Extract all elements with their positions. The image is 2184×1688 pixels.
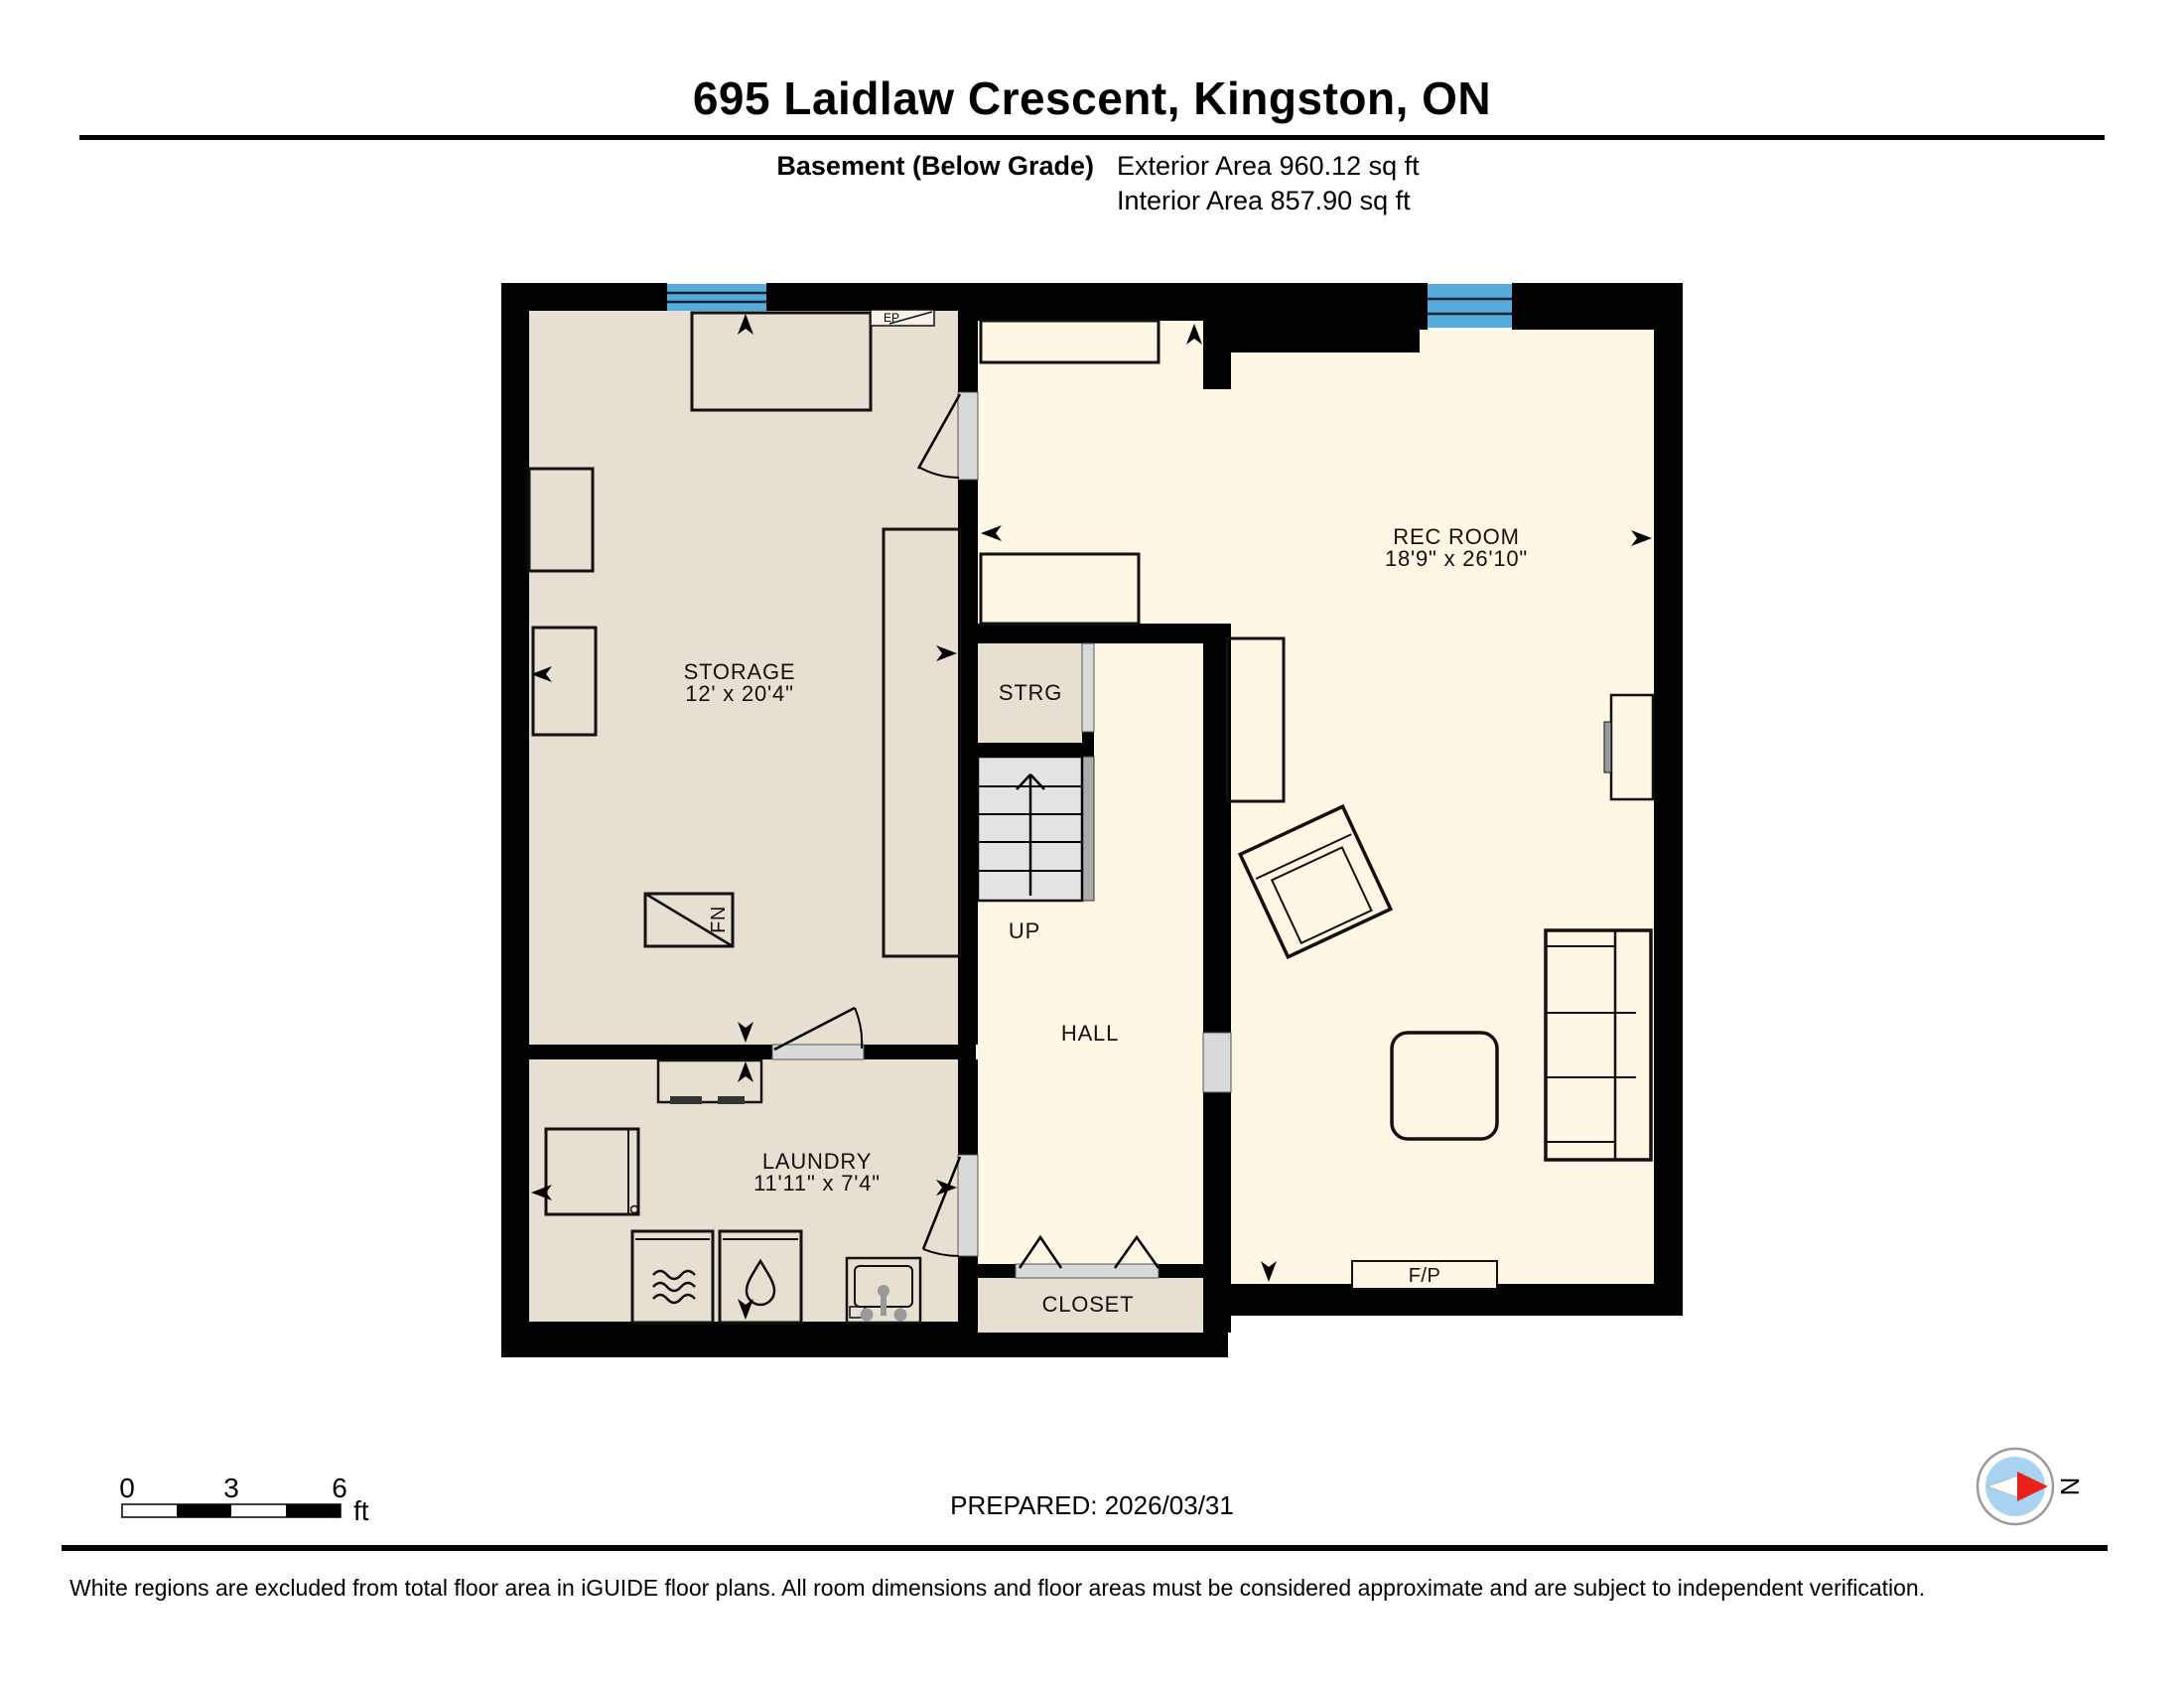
wall [958, 1059, 978, 1155]
wall [1082, 732, 1094, 757]
wall [958, 311, 978, 392]
stairs-up-label: UP [1009, 918, 1040, 943]
fireplace-label: F/P [1409, 1265, 1441, 1287]
room-dims-laundry: 11'11" x 7'4" [753, 1171, 881, 1196]
wall [958, 624, 1203, 643]
wall [1159, 1264, 1203, 1278]
foyer-floor [978, 321, 1203, 624]
wall-bottom-closet [976, 1333, 1228, 1357]
prepared-date: PREPARED: 2026/03/31 [0, 1490, 2184, 1521]
door-sill [772, 1045, 864, 1059]
wall-left [501, 283, 529, 1357]
foyer-rec-opening-floor [1203, 389, 1231, 624]
wall-right [1654, 283, 1683, 1316]
wall [958, 1256, 978, 1333]
room-label-hall: HALL [1061, 1021, 1119, 1046]
disclaimer-text: White regions are excluded from total fl… [69, 1575, 2134, 1602]
door-sill [958, 1155, 978, 1256]
wall-stub-foyer [1203, 321, 1231, 389]
wall-opening [1203, 1033, 1231, 1092]
door-sill [1082, 643, 1094, 732]
room-label-strg: STRG [999, 680, 1062, 705]
room-dims-storage: 12' x 20'4" [685, 681, 793, 706]
wall [766, 283, 958, 311]
furnace-label: FN [708, 906, 730, 933]
floorplan-drawing: STORAGE 12' x 20'4" REC ROOM 18'9" x 26'… [0, 0, 2184, 1688]
staircase [978, 757, 1082, 901]
floorplan-page: 695 Laidlaw Crescent, Kingston, ON Basem… [0, 0, 2184, 1688]
wall [976, 1264, 1016, 1278]
room-dims-rec-room: 18'9" x 26'10" [1385, 546, 1528, 571]
window-icon [667, 284, 766, 311]
electrical-panel-icon [871, 310, 934, 326]
wall [864, 1045, 976, 1059]
footer-divider [62, 1545, 2108, 1551]
wall [529, 1045, 772, 1059]
wall [958, 283, 1231, 321]
wall-bottom-laundry [501, 1322, 976, 1357]
stair-rail [1082, 757, 1094, 901]
rec-room-floor-strip [1420, 330, 1654, 352]
wall-hall-rec [1203, 1092, 1231, 1333]
closet-door-sill [1016, 1264, 1159, 1278]
electrical-panel-label: EP [884, 311, 899, 325]
room-label-closet: CLOSET [1042, 1292, 1135, 1317]
wall [958, 743, 1094, 757]
wall [1231, 283, 1420, 352]
window-icon [1428, 284, 1512, 328]
hall-floor [978, 901, 1203, 1264]
corridor-floor [1094, 643, 1203, 901]
door-sill [958, 392, 978, 480]
rec-room-floor [1231, 352, 1654, 1284]
